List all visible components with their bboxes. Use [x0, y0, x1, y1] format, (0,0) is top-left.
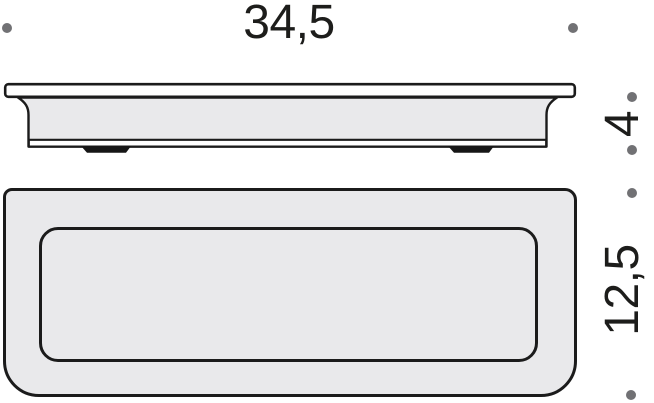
mounting-foot-left	[81, 146, 131, 153]
dimension-depth-label: 12,5	[599, 244, 647, 335]
dimension-marker-dot-width-right	[568, 23, 578, 33]
mounting-foot-right	[448, 146, 494, 153]
front-view-drawing	[0, 78, 590, 160]
top-view-outline	[3, 188, 577, 397]
dimension-height-label: 4	[599, 111, 647, 137]
top-view-recess-outline	[39, 227, 538, 362]
tray-base-strip	[29, 140, 546, 147]
dimension-marker-dot-height-bottom	[627, 145, 637, 155]
dimension-marker-dot-width-left	[2, 23, 12, 33]
dimension-marker-dot-height-top	[627, 92, 637, 102]
tray-rim-profile	[5, 84, 575, 97]
technical-drawing-canvas: 34,5 4 12,5	[0, 0, 654, 403]
dimension-marker-dot-depth-top	[627, 188, 637, 198]
dimension-marker-dot-depth-bottom	[626, 390, 636, 400]
dimension-width-label: 34,5	[204, 0, 374, 49]
